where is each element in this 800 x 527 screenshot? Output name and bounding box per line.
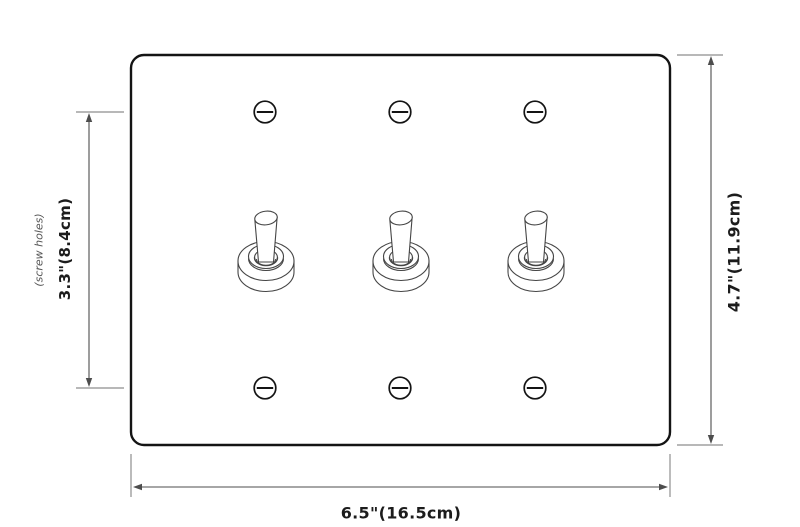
arrow-width-right	[659, 484, 668, 490]
screw-top-center-icon	[389, 101, 411, 123]
dimension-diagram-svg	[0, 0, 800, 527]
screw-bottom-right-icon	[524, 377, 546, 399]
plate-height-label: 4.7"(11.9cm)	[725, 192, 744, 313]
screw-bottom-center-icon	[389, 377, 411, 399]
plate-width-label: 6.5"(16.5cm)	[341, 504, 462, 523]
screw-spacing-label: 3.3"(8.4cm)	[56, 198, 74, 301]
arrow-spacing-up	[86, 113, 92, 122]
diagram-canvas: 6.5"(16.5cm) 4.7"(11.9cm) 3.3"(8.4cm) (s…	[0, 0, 800, 527]
arrow-width-left	[133, 484, 142, 490]
screw-top-left-icon	[254, 101, 276, 123]
screw-spacing-note: (screw holes)	[33, 213, 46, 286]
screw-top-right-icon	[524, 101, 546, 123]
arrow-height-down	[708, 435, 714, 444]
screw-bottom-left-icon	[254, 377, 276, 399]
arrow-spacing-down	[86, 378, 92, 387]
arrow-height-up	[708, 56, 714, 65]
